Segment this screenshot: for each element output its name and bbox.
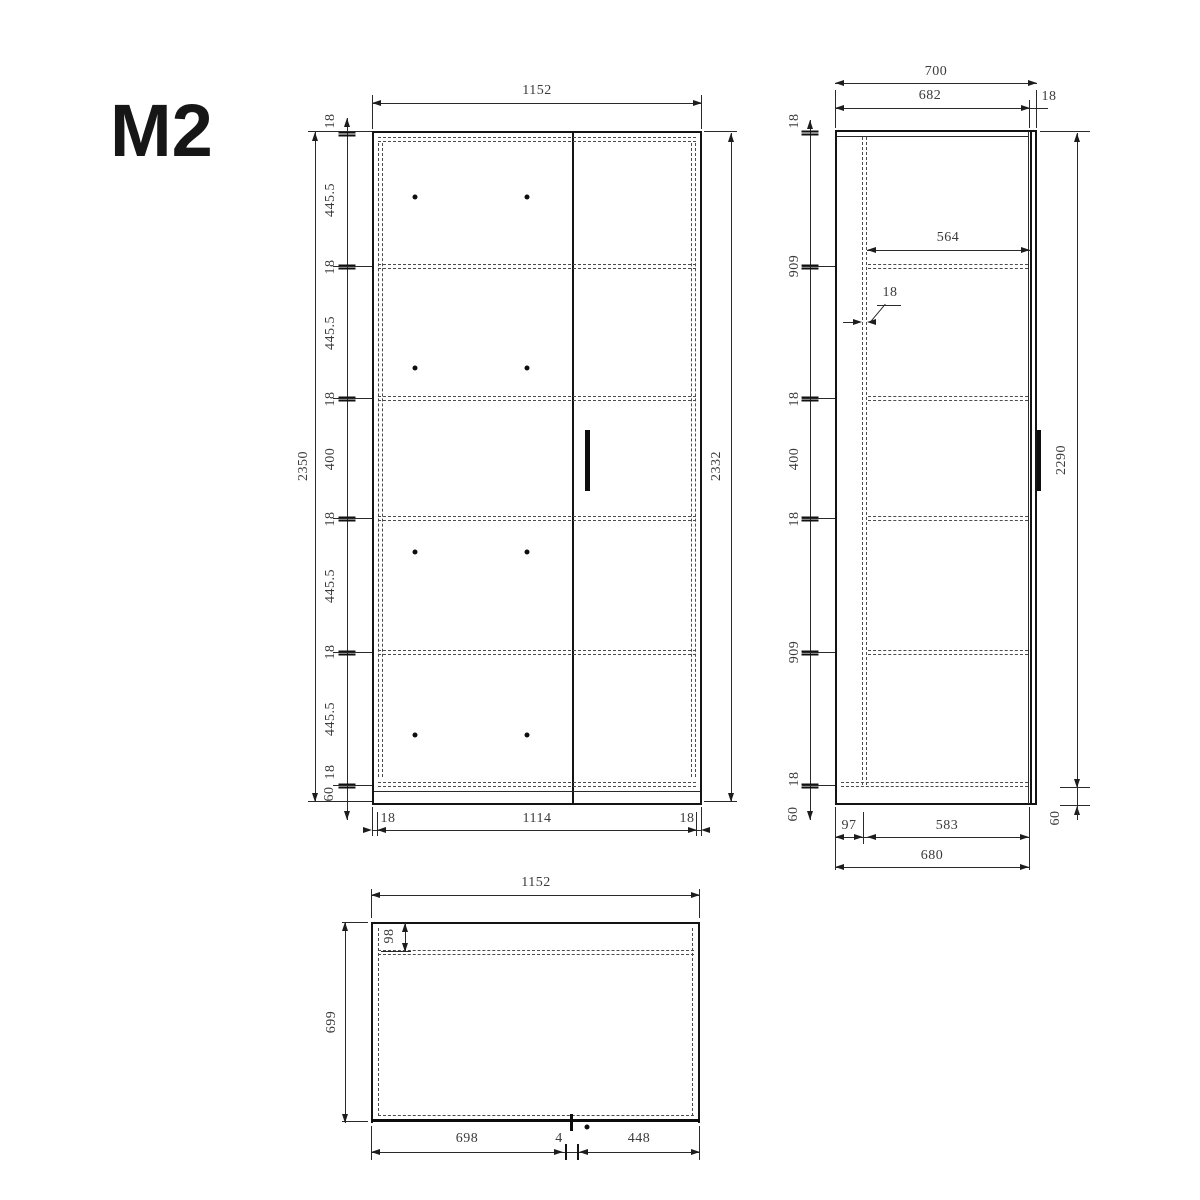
- plan-front-dashed-line: [378, 1115, 694, 1116]
- front-top-width-label: 1152: [522, 83, 551, 99]
- extension-line: [1036, 90, 1037, 128]
- arrowhead: [342, 1114, 348, 1123]
- dimension-line: [835, 867, 1029, 868]
- side-shelf-dashed-line: [868, 650, 1028, 655]
- extension-line: [802, 518, 835, 519]
- front-base-line: [374, 791, 700, 792]
- front-left-chain-label: 18: [323, 645, 339, 660]
- arrowhead: [691, 1149, 700, 1155]
- front-shelf-dashed-line: [378, 650, 696, 655]
- front-right-panel-dashed: [691, 143, 696, 777]
- front-door-divider: [572, 132, 574, 803]
- dimension-line: [1077, 133, 1078, 788]
- arrowhead: [867, 834, 876, 840]
- side-back-panel-thickness-label: 18: [883, 285, 898, 301]
- arrowhead: [344, 118, 350, 127]
- front-overall-height-label: 2350: [296, 451, 312, 481]
- front-left-chain-label: 445.5: [323, 316, 339, 350]
- arrowhead: [363, 827, 372, 833]
- front-left-chain-label: 60: [322, 787, 338, 802]
- arrowhead: [867, 247, 876, 253]
- dim-tick: [802, 131, 819, 136]
- arrowhead: [728, 133, 734, 142]
- front-left-chain-label: 445.5: [323, 702, 339, 736]
- plan-right-dashed-line: [692, 928, 693, 1116]
- plan-left-dashed-line: [378, 928, 379, 1116]
- shelf-pin-dot: [525, 733, 530, 738]
- front-left-chain-label: 18: [323, 260, 339, 275]
- side-outline-bottom: [835, 803, 1037, 805]
- dim-tick: [339, 132, 356, 137]
- side-body-right-line: [1028, 131, 1029, 804]
- front-outline-top: [372, 131, 702, 133]
- dimension-line: [1077, 806, 1078, 820]
- plan-outline-right: [698, 922, 700, 1123]
- chain-dimension-line: [347, 118, 348, 820]
- side-door-inner-line: [1030, 130, 1032, 805]
- arrowhead: [372, 100, 381, 106]
- side-left-chain-label: 18: [787, 392, 803, 407]
- arrowhead: [853, 319, 862, 325]
- extension-line: [1040, 131, 1090, 132]
- plan-back-rail-depth-label: 98: [382, 929, 398, 944]
- arrowhead: [835, 80, 844, 86]
- arrowhead: [807, 120, 813, 129]
- arrowhead: [371, 892, 380, 898]
- side-door-thickness-label: 18: [1042, 89, 1057, 105]
- dimension-line: [345, 922, 346, 1123]
- arrowhead: [344, 811, 350, 820]
- arrowhead: [371, 1149, 380, 1155]
- plan-top-width-label: 1152: [521, 875, 550, 891]
- front-left-chain-label: 445.5: [323, 183, 339, 217]
- arrowhead: [1021, 247, 1030, 253]
- front-left-panel-dashed: [378, 143, 383, 777]
- arrowhead: [342, 922, 348, 931]
- plan-door-gap-mark: [570, 1114, 573, 1131]
- front-top-panel-dashed: [378, 137, 696, 142]
- plan-bottom-chain-label: 698: [456, 1131, 479, 1147]
- drawing-title: M2: [110, 88, 213, 173]
- plan-outline-top: [371, 922, 700, 924]
- front-left-chain-label: 445.5: [323, 569, 339, 603]
- extension-line: [802, 266, 835, 267]
- side-left-chain-label: 400: [787, 448, 803, 471]
- plan-outline-left: [371, 922, 373, 1123]
- extension-line: [863, 812, 864, 844]
- side-bottom-overall-label: 680: [921, 848, 944, 864]
- arrowhead: [554, 1149, 563, 1155]
- arrowhead: [728, 793, 734, 802]
- extension-line: [381, 951, 411, 952]
- arrowhead: [1028, 80, 1037, 86]
- shelf-pin-dot: [413, 366, 418, 371]
- side-left-chain-label: 909: [787, 255, 803, 278]
- side-left-chain-label: 18: [787, 512, 803, 527]
- arrowhead: [693, 100, 702, 106]
- extension-line: [802, 398, 835, 399]
- arrowhead: [691, 892, 700, 898]
- side-shelf-dashed-line: [868, 264, 1028, 269]
- front-shelf-dashed-line: [378, 516, 696, 521]
- extension-line: [1029, 807, 1030, 870]
- technical-drawing-sheet: M2 1152 18 445.5 18 445.5 18 400 18 445.…: [0, 0, 1200, 1200]
- arrowhead: [835, 105, 844, 111]
- front-outline-right: [700, 131, 702, 805]
- front-bottom-chain-label: 18: [381, 811, 396, 827]
- front-left-chain-label: 18: [323, 765, 339, 780]
- plan-handle-dot: [585, 1125, 590, 1130]
- front-bottom-chain-label: 1114: [523, 811, 552, 827]
- extension-line: [704, 131, 737, 132]
- arrowhead: [402, 923, 408, 932]
- side-shelf-depth-label: 564: [937, 230, 960, 246]
- front-right-height-label: 2332: [709, 451, 725, 481]
- arrowhead: [1074, 779, 1080, 788]
- extension-line: [372, 807, 373, 836]
- dimension-line: [371, 895, 700, 896]
- side-left-chain-label: 909: [787, 641, 803, 664]
- arrowhead: [807, 811, 813, 820]
- front-shelf-dashed-line: [378, 396, 696, 401]
- dimension-line: [835, 837, 1029, 838]
- plan-bottom-chain-label: 4: [555, 1131, 563, 1147]
- side-inner-depth-label: 682: [919, 88, 942, 104]
- side-body-height-label: 2290: [1054, 445, 1070, 475]
- dimension-line: [731, 133, 732, 802]
- arrowhead: [1020, 834, 1029, 840]
- arrowhead: [835, 834, 844, 840]
- side-depth-label: 700: [925, 64, 948, 80]
- arrowhead: [854, 834, 863, 840]
- plan-back-rail-dashed: [378, 950, 694, 955]
- arrowhead: [312, 793, 318, 802]
- shelf-pin-dot: [413, 195, 418, 200]
- plan-bottom-chain-label: 448: [628, 1131, 651, 1147]
- leader-line: [870, 304, 886, 322]
- leader-line: [877, 305, 901, 306]
- dim-tick: [565, 1144, 567, 1160]
- dimension-line: [1077, 788, 1078, 806]
- side-base-height-label: 60: [1048, 811, 1064, 826]
- arrowhead: [1021, 105, 1030, 111]
- front-left-chain-label: 18: [323, 512, 339, 527]
- dimension-line: [315, 132, 316, 802]
- chain-dimension-line: [810, 120, 811, 820]
- front-left-chain-label: 18: [323, 114, 339, 129]
- side-outline-top: [835, 130, 1037, 132]
- shelf-pin-dot: [525, 550, 530, 555]
- arrowhead: [701, 827, 710, 833]
- arrowhead: [579, 1149, 588, 1155]
- shelf-pin-dot: [413, 733, 418, 738]
- dimension-line: [835, 83, 1037, 84]
- side-left-chain-label: 60: [786, 807, 802, 822]
- side-door-handle: [1037, 430, 1041, 491]
- dimension-line: [1030, 108, 1048, 109]
- plan-depth-label: 699: [324, 1011, 340, 1034]
- front-left-chain-label: 400: [323, 448, 339, 471]
- front-shelf-dashed-line: [378, 264, 696, 269]
- arrowhead: [688, 827, 697, 833]
- front-bottom-panel-dashed: [378, 782, 696, 787]
- extension-line: [802, 785, 835, 786]
- front-bottom-chain-label: 18: [680, 811, 695, 827]
- front-door-handle: [585, 430, 590, 491]
- shelf-pin-dot: [525, 366, 530, 371]
- side-bottom-offset-label: 97: [842, 818, 857, 834]
- dimension-line: [371, 1152, 700, 1153]
- arrowhead: [1020, 864, 1029, 870]
- arrowhead: [1074, 133, 1080, 142]
- arrowhead: [835, 864, 844, 870]
- side-left-chain-label: 18: [787, 772, 803, 787]
- front-outline-bottom: [372, 803, 702, 805]
- arrowhead: [377, 827, 386, 833]
- side-back-panel-dashed: [862, 137, 867, 785]
- arrowhead: [312, 132, 318, 141]
- side-bottom-inner-label: 583: [936, 818, 959, 834]
- plan-front-edge: [371, 1119, 700, 1122]
- side-shelf-dashed-line: [868, 396, 1028, 401]
- side-left-chain-label: 18: [787, 114, 803, 129]
- front-left-chain-label: 18: [323, 392, 339, 407]
- side-outline-left: [835, 130, 837, 805]
- dimension-line: [867, 250, 1030, 251]
- front-outline-left: [372, 131, 374, 805]
- dimension-line: [835, 108, 1030, 109]
- dimension-line: [372, 103, 702, 104]
- shelf-pin-dot: [525, 195, 530, 200]
- shelf-pin-dot: [413, 550, 418, 555]
- extension-line: [333, 785, 372, 786]
- dimension-line: [372, 830, 702, 831]
- side-shelf-dashed-line: [868, 516, 1028, 521]
- side-bottom-panel-dashed: [841, 782, 1028, 787]
- extension-line: [802, 652, 835, 653]
